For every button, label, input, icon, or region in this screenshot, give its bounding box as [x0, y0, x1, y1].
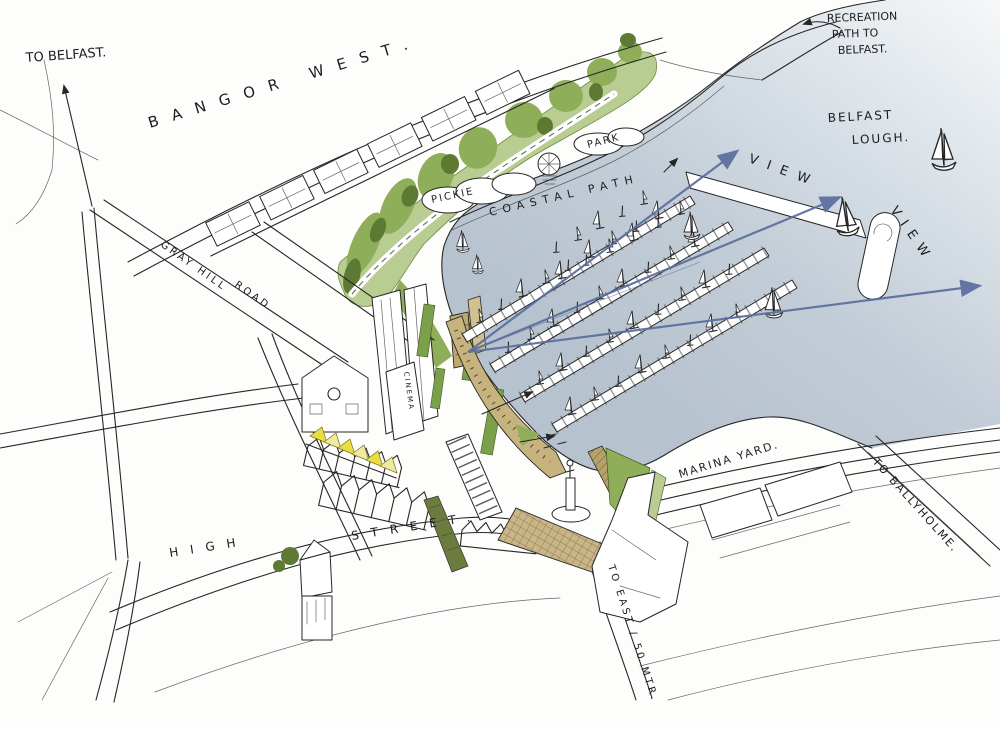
- left-horizontal-road-a: [0, 384, 298, 434]
- bottom-left-road-b: [114, 562, 140, 702]
- se-block-1: [700, 488, 772, 538]
- church-tree-2: [273, 560, 285, 572]
- church: [273, 540, 332, 640]
- bottom-left-road-a: [96, 560, 128, 700]
- bottom-left-diagonal-2: [42, 578, 108, 700]
- label-high: HIGH: [168, 534, 248, 560]
- label-recreation-3: BELFAST.: [838, 42, 888, 57]
- bangor-sketch: CINEMA: [0, 0, 1000, 729]
- statue-head: [567, 460, 573, 466]
- label-to-belfast: TO BELFAST.: [24, 45, 106, 66]
- big-house: [302, 356, 368, 432]
- label-road: ROAD: [232, 279, 272, 312]
- label-marina-yard: MARINA YARD.: [677, 438, 780, 481]
- label-recreation-1: RECREATION: [827, 10, 898, 25]
- se-sketch-line-2: [668, 640, 1000, 700]
- se-sketch-line-1: [640, 596, 1000, 666]
- headland-outline: [592, 472, 688, 622]
- sketch-canvas: CINEMA: [0, 0, 1000, 729]
- label-street: STREET.: [350, 508, 483, 543]
- statue-figure: [566, 466, 574, 478]
- tl-road-1: [0, 110, 98, 160]
- pavilion-spokes: [538, 153, 560, 175]
- to-belfast-arrow: [64, 86, 92, 206]
- se-block-2: [765, 462, 852, 516]
- label-bangor-west: BANGOR WEST.: [146, 31, 423, 131]
- statue-pedestal: [566, 478, 575, 510]
- bottom-street-b: [155, 598, 560, 692]
- label-to-ballyholme: TO BALLYHOLME.: [869, 455, 961, 555]
- tl-road-2: [16, 60, 54, 224]
- label-recreation-2: PATH TO: [832, 26, 879, 41]
- left-horizontal-road-b: [0, 398, 304, 448]
- label-gray-hill: GRAY HILL: [158, 239, 228, 293]
